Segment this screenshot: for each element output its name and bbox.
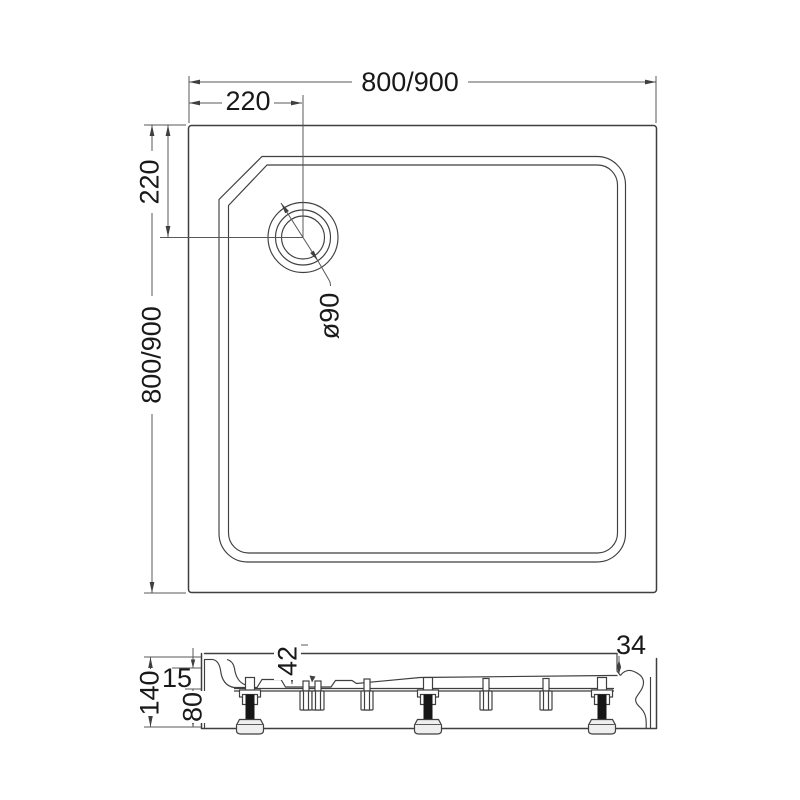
foot-cap [415, 720, 442, 735]
shower-tray-drawing: ø90 800/900 220 [0, 0, 800, 800]
adjustable-foot [237, 678, 264, 735]
foot-cap [589, 720, 616, 735]
dim-drain-recess-depth: 42 [273, 640, 303, 685]
rib [361, 679, 373, 710]
arrowhead [645, 80, 656, 85]
rib [312, 681, 324, 710]
dim-drain-offset-horizontal: 220 [189, 86, 302, 116]
tray-inner-rim-outer-line [219, 157, 626, 563]
drain-waste-outlet: ø90 [268, 203, 345, 340]
overall-height-label: 800/900 [137, 306, 167, 404]
arrowhead [150, 125, 155, 136]
adjustable-foot [589, 678, 616, 735]
rib [540, 679, 552, 711]
dim-leg-height: 80 [178, 689, 208, 727]
arrowhead [166, 226, 171, 237]
arrowhead [310, 251, 318, 261]
section-overall-height-label: 140 [135, 670, 165, 715]
arrowhead [150, 582, 155, 593]
adjustable-foot [415, 678, 442, 735]
leg-height-label: 80 [178, 692, 208, 722]
arrowhead [166, 125, 171, 136]
adjustable-feet [237, 678, 616, 735]
top-view-plan: ø90 800/900 220 [135, 67, 657, 593]
drain-offset-vertical-label: 220 [135, 159, 165, 204]
dim-edge-height: 34 [616, 630, 646, 674]
arrowhead [148, 716, 153, 727]
lip-curve-inner [213, 660, 234, 688]
tray-outer-edge [189, 126, 657, 593]
rim-height-label: 15 [162, 663, 192, 693]
lip-curve-outer [227, 660, 247, 686]
section-view: 140 15 80 42 34 [135, 630, 657, 734]
arrowhead [148, 657, 153, 668]
rib [300, 681, 312, 710]
threaded-rod [246, 695, 255, 721]
drain-offset-horizontal-label: 220 [225, 86, 270, 116]
overall-width-label: 800/900 [361, 67, 459, 97]
rib [480, 679, 492, 711]
arrowhead [281, 203, 289, 213]
dim-section-overall-height: 140 [135, 657, 165, 727]
drain-recess-depth-label: 42 [273, 646, 303, 676]
arrowhead [189, 80, 200, 85]
technical-drawing-canvas: ø90 800/900 220 [0, 0, 800, 800]
foot-cap [237, 720, 264, 735]
arrowhead [291, 101, 302, 106]
arrowhead [189, 101, 200, 106]
right-end-profile [621, 670, 647, 728]
dim-rim-height: 15 [162, 648, 195, 693]
edge-height-label: 34 [616, 630, 646, 660]
drain-diameter-label: ø90 [315, 293, 345, 340]
threaded-rod [424, 695, 433, 721]
threaded-rod [598, 695, 607, 721]
